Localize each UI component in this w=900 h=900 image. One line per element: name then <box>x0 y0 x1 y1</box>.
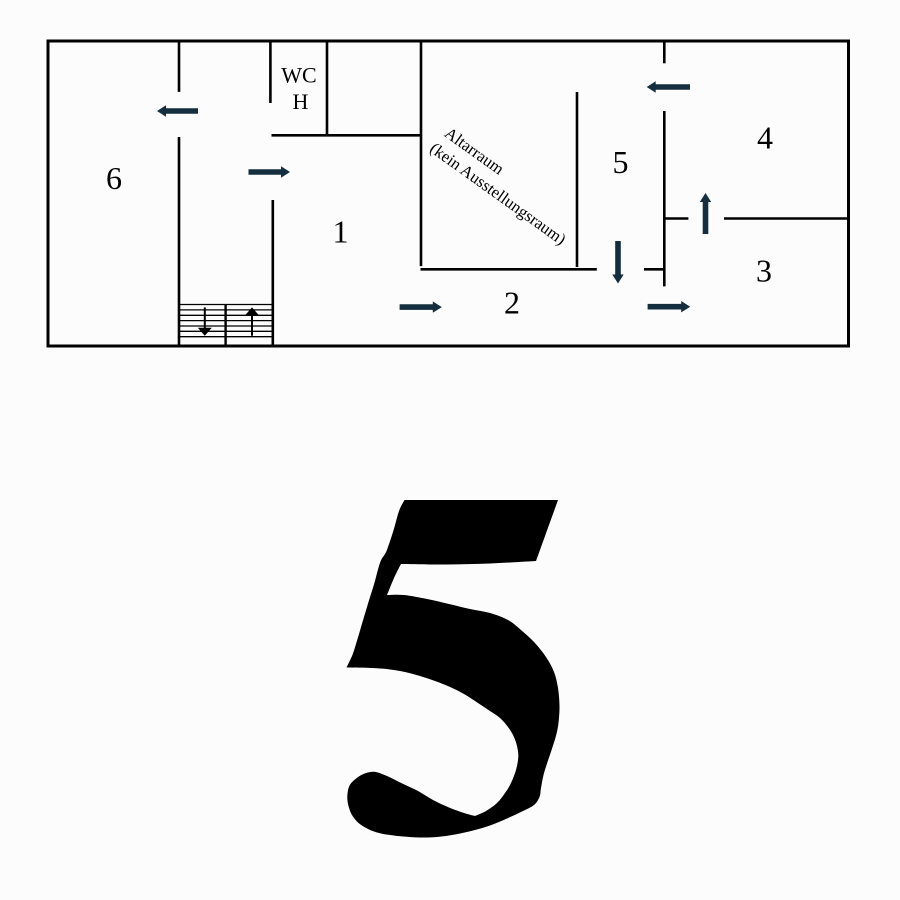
svg-text:2: 2 <box>504 285 520 321</box>
svg-text:4: 4 <box>757 120 773 156</box>
svg-text:1: 1 <box>333 214 349 250</box>
svg-text:H: H <box>293 89 309 114</box>
svg-text:3: 3 <box>756 253 772 289</box>
svg-text:6: 6 <box>106 160 122 196</box>
svg-text:5: 5 <box>613 144 629 180</box>
svg-text:WC: WC <box>281 62 316 87</box>
